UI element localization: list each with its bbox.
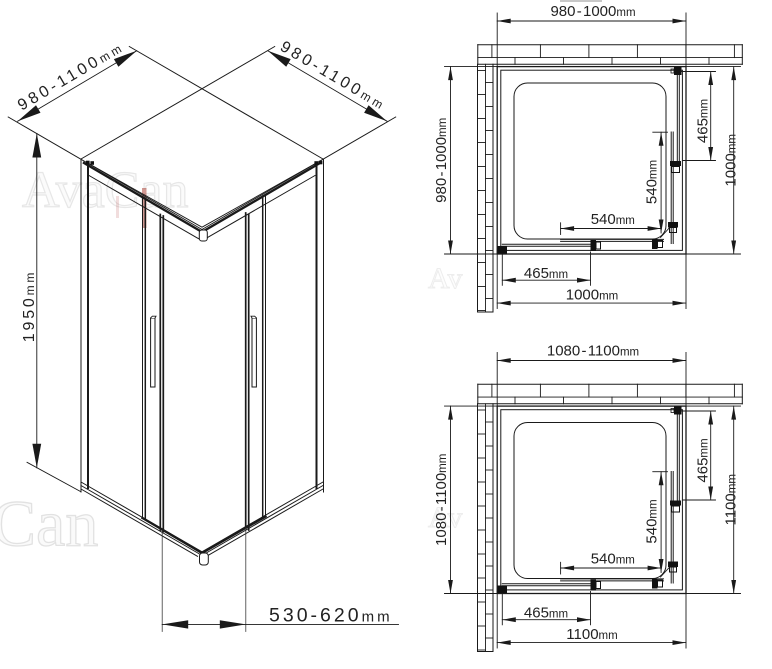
svg-text:1950mm: 1950mm [21,270,38,342]
svg-text:Can: Can [0,488,98,561]
svg-text:530-620mm: 530-620mm [269,605,393,627]
svg-text:Av: Av [428,262,462,295]
